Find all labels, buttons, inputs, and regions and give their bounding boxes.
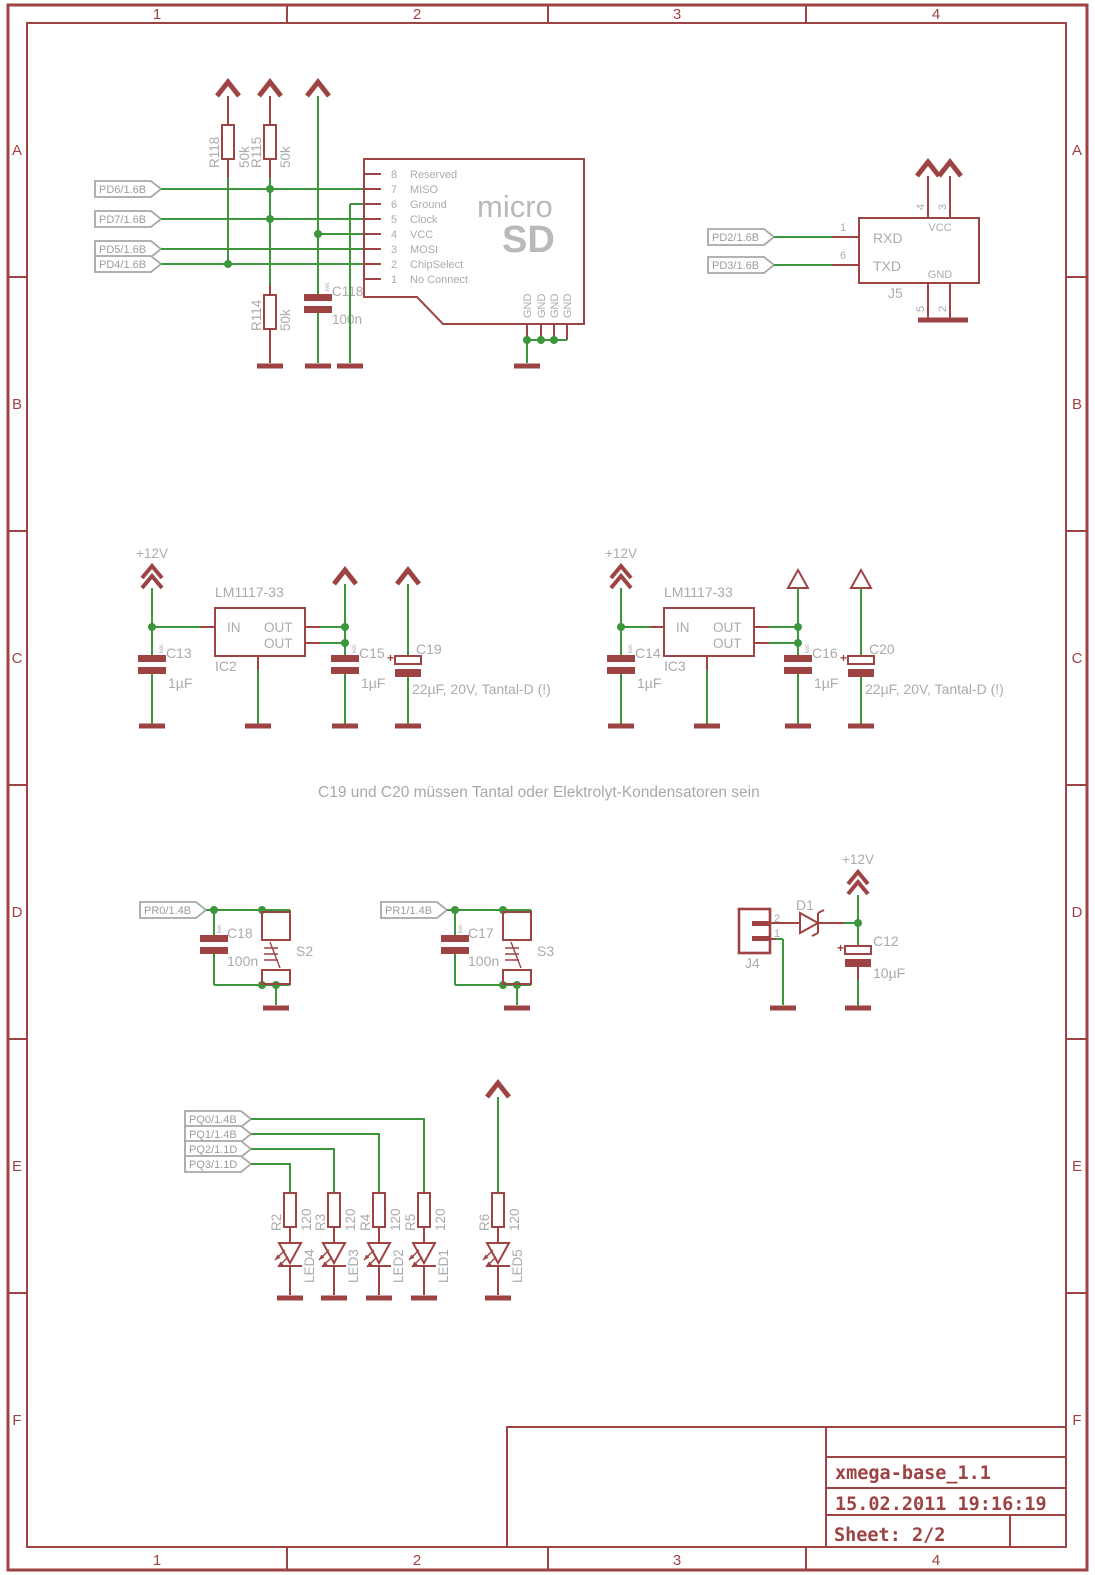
led-ref: LED5 bbox=[510, 1249, 525, 1283]
pin-name: IN bbox=[676, 620, 690, 635]
cap-ref: C15 bbox=[359, 645, 385, 661]
frame-row-label: F bbox=[12, 1412, 21, 1429]
led-symbol bbox=[319, 1243, 346, 1267]
cap-value: 100n bbox=[468, 953, 499, 969]
pin-name: OUT bbox=[264, 636, 293, 651]
capacitor-c20 bbox=[848, 656, 874, 677]
resistor-ref: R6 bbox=[477, 1214, 492, 1231]
cap-hint: ker. bbox=[352, 643, 358, 653]
cap-ref: C18 bbox=[227, 925, 253, 941]
frame-col-label: 4 bbox=[932, 6, 940, 23]
led-column-4: R5 120 LED1 bbox=[403, 1193, 451, 1298]
cap-value: 1µF bbox=[637, 675, 661, 691]
pin-name: No Connect bbox=[410, 274, 468, 286]
p12v-arrow-icon bbox=[611, 566, 631, 588]
supply-triangle-icon bbox=[788, 570, 808, 588]
led-ref: LED1 bbox=[436, 1249, 451, 1283]
cap-ref: C16 bbox=[812, 645, 838, 661]
vcc-arrow-icon bbox=[217, 82, 239, 96]
resistor-value: 120 bbox=[433, 1208, 448, 1231]
led-column-3: R4 120 LED2 bbox=[358, 1193, 406, 1298]
cap-ref: C12 bbox=[873, 933, 899, 949]
frame-col-label: 3 bbox=[673, 6, 681, 23]
cap-value: 1µF bbox=[361, 675, 385, 691]
resistor-ref: R118 bbox=[207, 137, 222, 168]
net-label: PD2/1.6B bbox=[712, 232, 759, 244]
j4-outline bbox=[739, 909, 770, 953]
pin-name: MOSI bbox=[410, 244, 438, 256]
pin-number: 3 bbox=[391, 244, 397, 256]
pin-name: ChipSelect bbox=[410, 259, 463, 271]
cap-hint: ker. bbox=[805, 643, 811, 653]
frame-row-label: C bbox=[12, 650, 23, 667]
pin-number: 6 bbox=[840, 250, 846, 262]
cap-hint: ker. bbox=[217, 923, 223, 933]
net-label: PQ2/1.1D bbox=[189, 1144, 237, 1156]
frame-col-label: 3 bbox=[673, 1552, 681, 1569]
pin-name: Ground bbox=[410, 199, 447, 211]
regulator-ic2-section: +12V LM1117-33 IN OUT OUT IC2 ker. C13 1… bbox=[136, 546, 551, 726]
vcc-pin-name: VCC bbox=[928, 222, 951, 234]
cap-ref: C19 bbox=[416, 641, 442, 657]
capacitor-c19 bbox=[395, 656, 421, 677]
pin-number: 5 bbox=[915, 306, 927, 312]
resistor-r3 bbox=[328, 1193, 340, 1227]
pin-number: 2 bbox=[937, 306, 949, 312]
vcc-arrow-icon bbox=[307, 82, 329, 96]
ic-ref: IC2 bbox=[215, 658, 237, 674]
diode-d1 bbox=[800, 913, 818, 933]
polarity-plus: + bbox=[840, 651, 847, 665]
ic-ref: IC3 bbox=[664, 658, 686, 674]
resistor-value: 120 bbox=[343, 1208, 358, 1231]
pin-name: OUT bbox=[264, 620, 293, 635]
pin-name: MISO bbox=[410, 184, 439, 196]
resistor-value: 120 bbox=[388, 1208, 403, 1231]
supply-triangle-icon bbox=[851, 570, 871, 588]
microsd-logo-bottom: SD bbox=[502, 219, 555, 261]
part-name: LM1117-33 bbox=[664, 584, 733, 600]
resistor-value: 50k bbox=[278, 146, 293, 168]
frame-col-label: 2 bbox=[413, 6, 421, 23]
supply-label: +12V bbox=[136, 546, 168, 561]
title-block: xmega-base_1.1 15.02.2011 19:16:19 Sheet… bbox=[507, 1427, 1066, 1547]
capacitor-c12 bbox=[845, 946, 871, 967]
led-symbol bbox=[483, 1243, 510, 1267]
pin-name: Reserved bbox=[410, 169, 457, 181]
pin-number: 4 bbox=[391, 229, 397, 241]
frame-row-label: E bbox=[1072, 1158, 1082, 1175]
capacitor-c118 bbox=[304, 294, 332, 313]
frame-row-label: E bbox=[12, 1158, 22, 1175]
pin-name: IN bbox=[227, 620, 241, 635]
resistor-ref: R114 bbox=[249, 299, 264, 331]
resistor-r5 bbox=[418, 1193, 430, 1227]
capacitor-c13 bbox=[138, 655, 166, 674]
net-label: PQ3/1.1D bbox=[189, 1159, 237, 1171]
cap-ref: C14 bbox=[635, 645, 661, 661]
net-label: PD4/1.6B bbox=[99, 259, 146, 271]
button-s2-section: PR0/1.4B ker. C18 100n S2 bbox=[140, 902, 313, 1008]
resistor-value: 50k bbox=[278, 309, 293, 331]
gnd-pin-label: GND bbox=[562, 294, 574, 319]
pushbutton-symbol bbox=[262, 912, 290, 984]
gnd-pin-name: GND bbox=[928, 269, 953, 281]
cap-ref: C17 bbox=[468, 925, 494, 941]
regulator-ic3-section: +12V LM1117-33 IN OUT OUT IC3 ker. C14 1… bbox=[605, 546, 1004, 726]
frame-row-label: F bbox=[1072, 1412, 1081, 1429]
frame-col-label: 4 bbox=[932, 1552, 940, 1569]
supply-label: +12V bbox=[842, 852, 874, 867]
part-name: LM1117-33 bbox=[215, 584, 284, 600]
pin-name: VCC bbox=[410, 229, 433, 241]
microsd-section: R118 50k R115 50k R114 50k ker. C118 100… bbox=[95, 82, 584, 366]
cap-hint: ker. bbox=[458, 923, 464, 933]
resistor-value: 120 bbox=[507, 1208, 522, 1231]
resistor-r2 bbox=[284, 1193, 296, 1227]
pin-number: 3 bbox=[937, 204, 949, 210]
capacitor-c16 bbox=[784, 655, 812, 674]
cap-ref: C13 bbox=[166, 645, 192, 661]
frame-row-label: B bbox=[1072, 396, 1082, 413]
frame-row-label: C bbox=[1072, 650, 1083, 667]
cap-hint: ker. bbox=[159, 643, 165, 653]
resistor-r114 bbox=[264, 295, 276, 329]
net-label: PD7/1.6B bbox=[99, 214, 146, 226]
net-label: PQ1/1.4B bbox=[189, 1129, 237, 1141]
led-ref: LED4 bbox=[302, 1249, 317, 1283]
pin-name: OUT bbox=[713, 636, 742, 651]
cap-hint: ker. bbox=[628, 643, 634, 653]
vcc-arrow-icon bbox=[487, 1083, 509, 1097]
p12v-arrow-icon bbox=[142, 566, 162, 588]
net-label: PD3/1.6B bbox=[712, 260, 759, 272]
cap-hint: ker. bbox=[325, 281, 331, 291]
cap-value: 1µF bbox=[814, 675, 838, 691]
vcc-arrow-icon bbox=[397, 570, 419, 584]
switch-ref: S3 bbox=[537, 943, 554, 959]
project-title: xmega-base_1.1 bbox=[835, 1463, 991, 1484]
cap-ref: C20 bbox=[869, 641, 895, 657]
frame-row-label: D bbox=[1072, 904, 1083, 921]
resistor-r115 bbox=[264, 125, 276, 159]
cap-ref: C118 bbox=[332, 284, 363, 299]
switch-ref: S2 bbox=[296, 943, 313, 959]
led-symbol bbox=[409, 1243, 436, 1267]
cap-value: 22µF, 20V, Tantal-D (!) bbox=[865, 681, 1004, 697]
pin-name: RXD bbox=[873, 230, 903, 246]
vcc-arrow-icon bbox=[939, 162, 961, 176]
vcc-arrow-icon bbox=[259, 82, 281, 96]
gnd-pin-label: GND bbox=[536, 294, 548, 319]
cap-value: 1µF bbox=[168, 675, 192, 691]
cap-value: 100n bbox=[227, 953, 258, 969]
polarity-plus: + bbox=[837, 941, 844, 955]
led-symbol bbox=[275, 1243, 302, 1267]
frame-col-label: 2 bbox=[413, 1552, 421, 1569]
sheet-number: Sheet: 2/2 bbox=[834, 1525, 945, 1546]
frame-row-label: A bbox=[12, 142, 22, 159]
resistor-ref: R2 bbox=[269, 1214, 284, 1231]
capacitor-c15 bbox=[331, 655, 359, 674]
resistor-r6 bbox=[492, 1193, 504, 1227]
resistor-ref: R4 bbox=[358, 1213, 373, 1231]
connector-ref: J4 bbox=[745, 955, 760, 971]
frame-row-label: B bbox=[12, 396, 22, 413]
supply-label: +12V bbox=[605, 546, 637, 561]
led-bank-section: PQ0/1.4B PQ1/1.4B PQ2/1.1D PQ3/1.1D R2 1… bbox=[185, 1083, 525, 1298]
net-label: PR0/1.4B bbox=[144, 905, 191, 917]
resistor-ref: R5 bbox=[403, 1214, 418, 1231]
pin-name: TXD bbox=[873, 258, 901, 274]
cap-value: 22µF, 20V, Tantal-D (!) bbox=[412, 681, 551, 697]
pin-number: 2 bbox=[391, 259, 397, 271]
led-column-5: R6 120 LED5 bbox=[477, 1193, 525, 1298]
net-label: PD6/1.6B bbox=[99, 184, 146, 196]
connector-ref: J5 bbox=[888, 285, 903, 301]
led-ref: LED2 bbox=[391, 1249, 406, 1283]
designer-note: C19 und C20 müssen Tantal oder Elektroly… bbox=[318, 784, 760, 801]
led-column-1: R2 120 LED4 bbox=[269, 1193, 317, 1298]
uart-header-section: PD2/1.6B PD3/1.6B 1 6 RXD TXD VCC GND 4 … bbox=[708, 162, 979, 320]
net-label: PQ0/1.4B bbox=[189, 1114, 237, 1126]
resistor-ref: R115 bbox=[249, 137, 264, 168]
pin-number: 4 bbox=[915, 204, 927, 210]
resistor-r118 bbox=[222, 125, 234, 159]
power-input-section: 2 1 J4 D1 +12V + C12 10µF bbox=[739, 852, 905, 1008]
diode-ref: D1 bbox=[796, 897, 814, 913]
led-symbol bbox=[364, 1243, 391, 1267]
capacitor-c18 bbox=[200, 935, 228, 954]
pin-number: 1 bbox=[840, 222, 846, 234]
pin-number: 8 bbox=[391, 169, 397, 181]
net-label: PD5/1.6B bbox=[99, 244, 146, 256]
capacitor-c17 bbox=[441, 935, 469, 954]
net-label: PR1/1.4B bbox=[385, 905, 432, 917]
timestamp: 15.02.2011 19:16:19 bbox=[835, 1494, 1047, 1515]
led-ref: LED3 bbox=[346, 1249, 361, 1283]
cap-value: 100n bbox=[332, 312, 362, 327]
resistor-value: 120 bbox=[299, 1208, 314, 1231]
frame-row-label: D bbox=[12, 904, 23, 921]
capacitor-c14 bbox=[607, 655, 635, 674]
button-s3-section: PR1/1.4B ker. C17 100n S3 bbox=[381, 902, 554, 1008]
frame-col-label: 1 bbox=[153, 1552, 161, 1569]
p12v-arrow-icon bbox=[848, 872, 868, 894]
vcc-arrow-icon bbox=[917, 162, 939, 176]
vcc-arrow-icon bbox=[334, 570, 356, 584]
resistor-r4 bbox=[373, 1193, 385, 1227]
pin-number: 1 bbox=[391, 274, 397, 286]
led-column-2: R3 120 LED3 bbox=[313, 1193, 361, 1298]
pushbutton-symbol bbox=[503, 912, 531, 984]
gnd-pin-label: GND bbox=[549, 294, 561, 319]
frame-col-label: 1 bbox=[153, 6, 161, 23]
pin-number: 5 bbox=[391, 214, 397, 226]
pin-name: OUT bbox=[713, 620, 742, 635]
schematic-sheet: 1 2 3 4 1 2 3 4 A B C D E F A B C D E F … bbox=[0, 0, 1095, 1575]
pin-number: 6 bbox=[391, 199, 397, 211]
cap-value: 10µF bbox=[873, 965, 905, 981]
pin-number: 7 bbox=[391, 184, 397, 196]
frame-row-label: A bbox=[1072, 142, 1082, 159]
pin-name: Clock bbox=[410, 214, 438, 226]
gnd-pin-label: GND bbox=[522, 294, 534, 319]
resistor-ref: R3 bbox=[313, 1214, 328, 1231]
polarity-plus: + bbox=[387, 651, 394, 665]
